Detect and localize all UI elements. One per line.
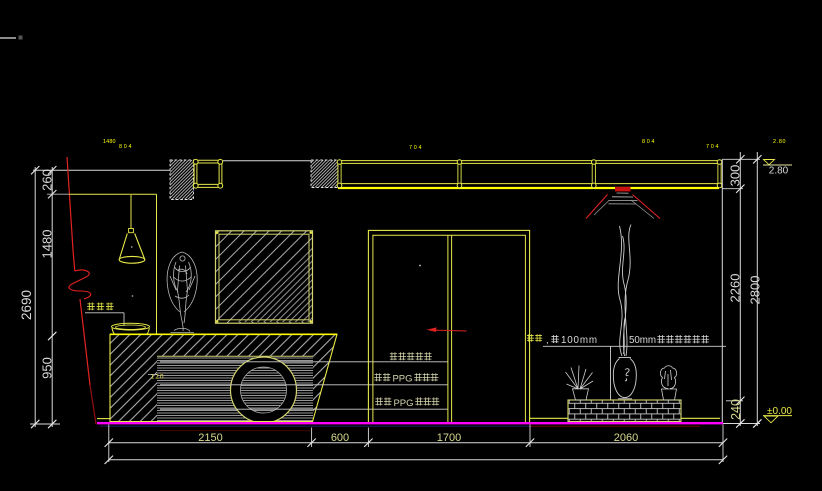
svg-text:2.80: 2.80 bbox=[773, 139, 786, 145]
svg-text:PPG: PPG bbox=[394, 398, 414, 409]
svg-text:240: 240 bbox=[729, 399, 743, 420]
svg-text:120: 120 bbox=[151, 374, 164, 381]
svg-text:2150: 2150 bbox=[198, 432, 222, 444]
svg-text:600: 600 bbox=[331, 432, 349, 444]
svg-text:300: 300 bbox=[728, 165, 743, 187]
svg-text:2260: 2260 bbox=[728, 274, 743, 303]
svg-text:2690: 2690 bbox=[19, 290, 34, 320]
svg-text:PPG: PPG bbox=[393, 374, 413, 385]
svg-text:804: 804 bbox=[642, 139, 655, 145]
svg-text:260: 260 bbox=[40, 169, 55, 191]
svg-text:1480: 1480 bbox=[103, 139, 116, 145]
svg-text:704: 704 bbox=[706, 144, 719, 150]
svg-text:704: 704 bbox=[409, 145, 422, 151]
svg-text:1480: 1480 bbox=[40, 230, 55, 259]
svg-text:,: , bbox=[546, 335, 549, 346]
svg-text:100mm: 100mm bbox=[561, 335, 597, 346]
svg-text:2800: 2800 bbox=[748, 276, 763, 305]
svg-text:50mm: 50mm bbox=[629, 335, 656, 346]
svg-text:1700: 1700 bbox=[437, 432, 461, 444]
svg-text:2.80: 2.80 bbox=[769, 166, 789, 177]
svg-text:950: 950 bbox=[40, 357, 55, 379]
svg-text:804: 804 bbox=[119, 144, 132, 150]
svg-text:2060: 2060 bbox=[614, 432, 638, 444]
